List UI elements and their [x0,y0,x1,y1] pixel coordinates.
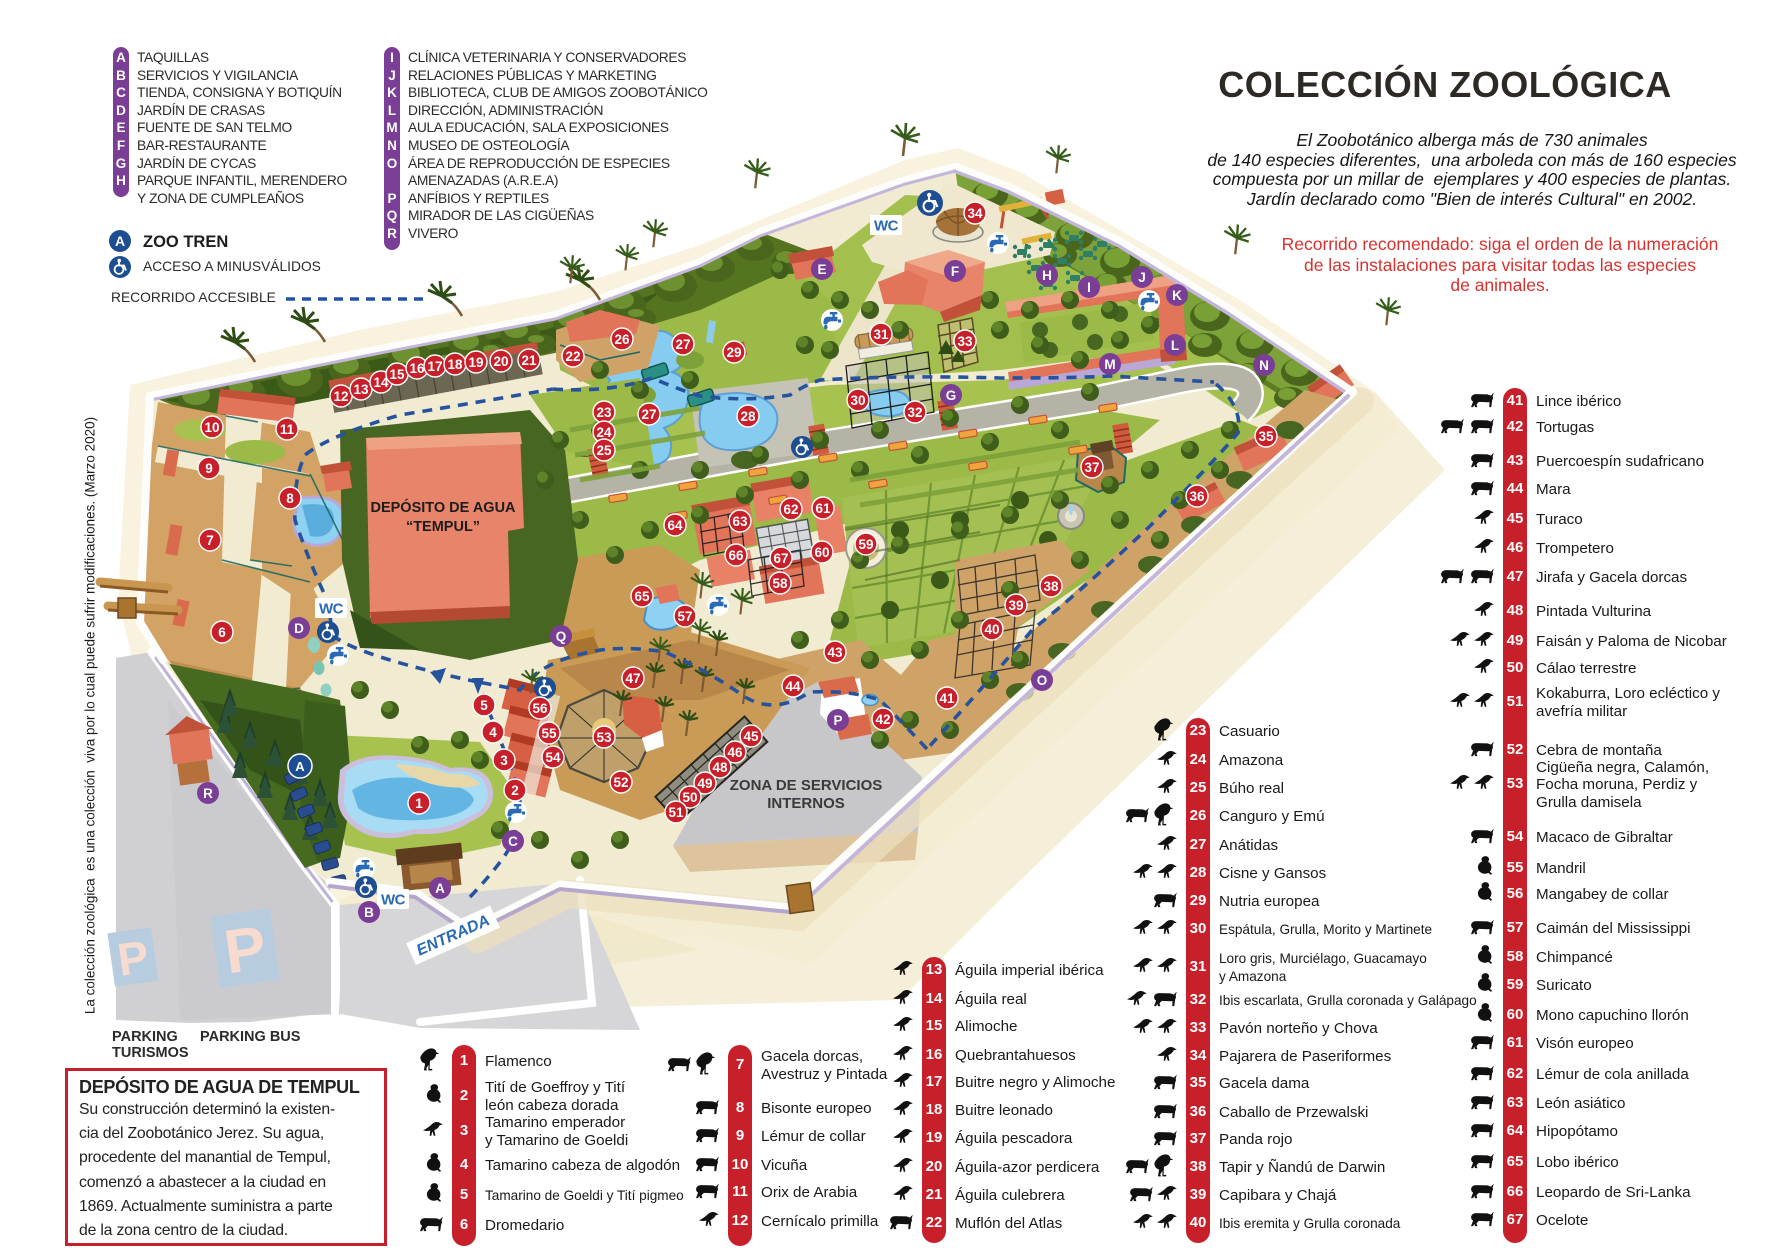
svg-text:8: 8 [286,491,294,506]
svg-text:36: 36 [1189,489,1205,504]
svg-text:16: 16 [409,361,425,376]
svg-text:3: 3 [500,753,508,768]
svg-text:A: A [435,881,445,896]
svg-text:WC: WC [874,218,899,235]
svg-text:28: 28 [740,409,756,424]
svg-text:33: 33 [957,334,973,349]
svg-text:B: B [364,905,374,920]
svg-text:I: I [1087,280,1091,295]
svg-text:54: 54 [545,750,561,765]
svg-text:26: 26 [614,332,630,347]
svg-text:64: 64 [667,518,683,533]
svg-text:50: 50 [682,790,697,805]
svg-text:40: 40 [984,622,999,637]
svg-text:35: 35 [1258,429,1274,444]
svg-text:D: D [294,621,304,636]
svg-text:J: J [1138,270,1146,285]
svg-text:44: 44 [785,679,801,694]
svg-text:C: C [508,834,518,849]
svg-text:L: L [1171,338,1179,353]
svg-text:53: 53 [596,730,612,745]
svg-text:10: 10 [204,420,219,435]
svg-text:49: 49 [697,776,712,791]
svg-text:27: 27 [641,407,656,422]
svg-text:6: 6 [218,625,226,640]
svg-text:31: 31 [873,327,889,342]
svg-text:48: 48 [712,760,728,775]
svg-text:61: 61 [815,501,831,516]
svg-text:DEPÓSITO DE AGUA: DEPÓSITO DE AGUA [370,498,516,516]
svg-text:M: M [1104,357,1115,372]
svg-text:12: 12 [333,389,348,404]
svg-text:65: 65 [634,589,650,604]
svg-text:34: 34 [967,206,983,221]
svg-text:46: 46 [727,745,743,760]
svg-text:P: P [833,713,842,728]
svg-text:27: 27 [675,337,690,352]
svg-text:H: H [1042,268,1052,283]
svg-text:F: F [951,264,959,279]
svg-text:42: 42 [875,712,890,727]
svg-text:WC: WC [381,892,406,909]
svg-text:O: O [1037,673,1048,688]
svg-text:4: 4 [489,725,497,740]
svg-text:11: 11 [280,422,295,437]
svg-text:K: K [1172,288,1182,303]
svg-text:59: 59 [858,537,873,552]
svg-text:5: 5 [480,698,488,713]
svg-text:60: 60 [814,545,829,560]
svg-text:WC: WC [319,601,344,618]
svg-text:R: R [203,786,213,801]
svg-text:7: 7 [206,533,214,548]
svg-text:24: 24 [596,425,612,440]
svg-text:A: A [295,759,305,774]
svg-text:37: 37 [1084,460,1099,475]
svg-text:G: G [946,388,957,403]
svg-text:22: 22 [565,349,580,364]
svg-text:51: 51 [668,805,684,820]
svg-text:13: 13 [353,382,369,397]
svg-text:38: 38 [1043,579,1059,594]
svg-text:9: 9 [205,461,213,476]
svg-text:INTERNOS: INTERNOS [767,795,845,812]
svg-text:15: 15 [389,367,405,382]
svg-text:41: 41 [939,691,955,706]
svg-text:20: 20 [493,354,508,369]
svg-text:21: 21 [521,353,537,368]
svg-text:57: 57 [677,609,692,624]
svg-text:E: E [817,262,826,277]
svg-text:1: 1 [415,796,423,811]
svg-text:N: N [1259,358,1269,373]
svg-text:30: 30 [850,393,865,408]
svg-text:55: 55 [541,726,557,741]
svg-text:19: 19 [468,355,483,370]
svg-text:18: 18 [447,357,463,372]
svg-text:“TEMPUL”: “TEMPUL” [406,519,480,535]
svg-text:62: 62 [783,502,798,517]
svg-text:43: 43 [827,645,843,660]
svg-text:2: 2 [511,783,519,798]
svg-text:63: 63 [732,514,748,529]
svg-text:67: 67 [773,551,788,566]
svg-text:29: 29 [726,345,741,360]
svg-text:39: 39 [1008,598,1023,613]
svg-text:17: 17 [427,359,442,374]
svg-text:23: 23 [596,405,612,420]
svg-text:Q: Q [556,629,567,644]
svg-text:56: 56 [532,701,548,716]
svg-text:45: 45 [743,729,759,744]
svg-text:32: 32 [907,405,922,420]
svg-text:66: 66 [728,548,744,563]
svg-text:ZONA DE SERVICIOS: ZONA DE SERVICIOS [730,777,883,794]
svg-text:52: 52 [613,775,628,790]
svg-text:25: 25 [596,443,612,458]
svg-text:47: 47 [625,671,640,686]
svg-text:58: 58 [772,576,788,591]
